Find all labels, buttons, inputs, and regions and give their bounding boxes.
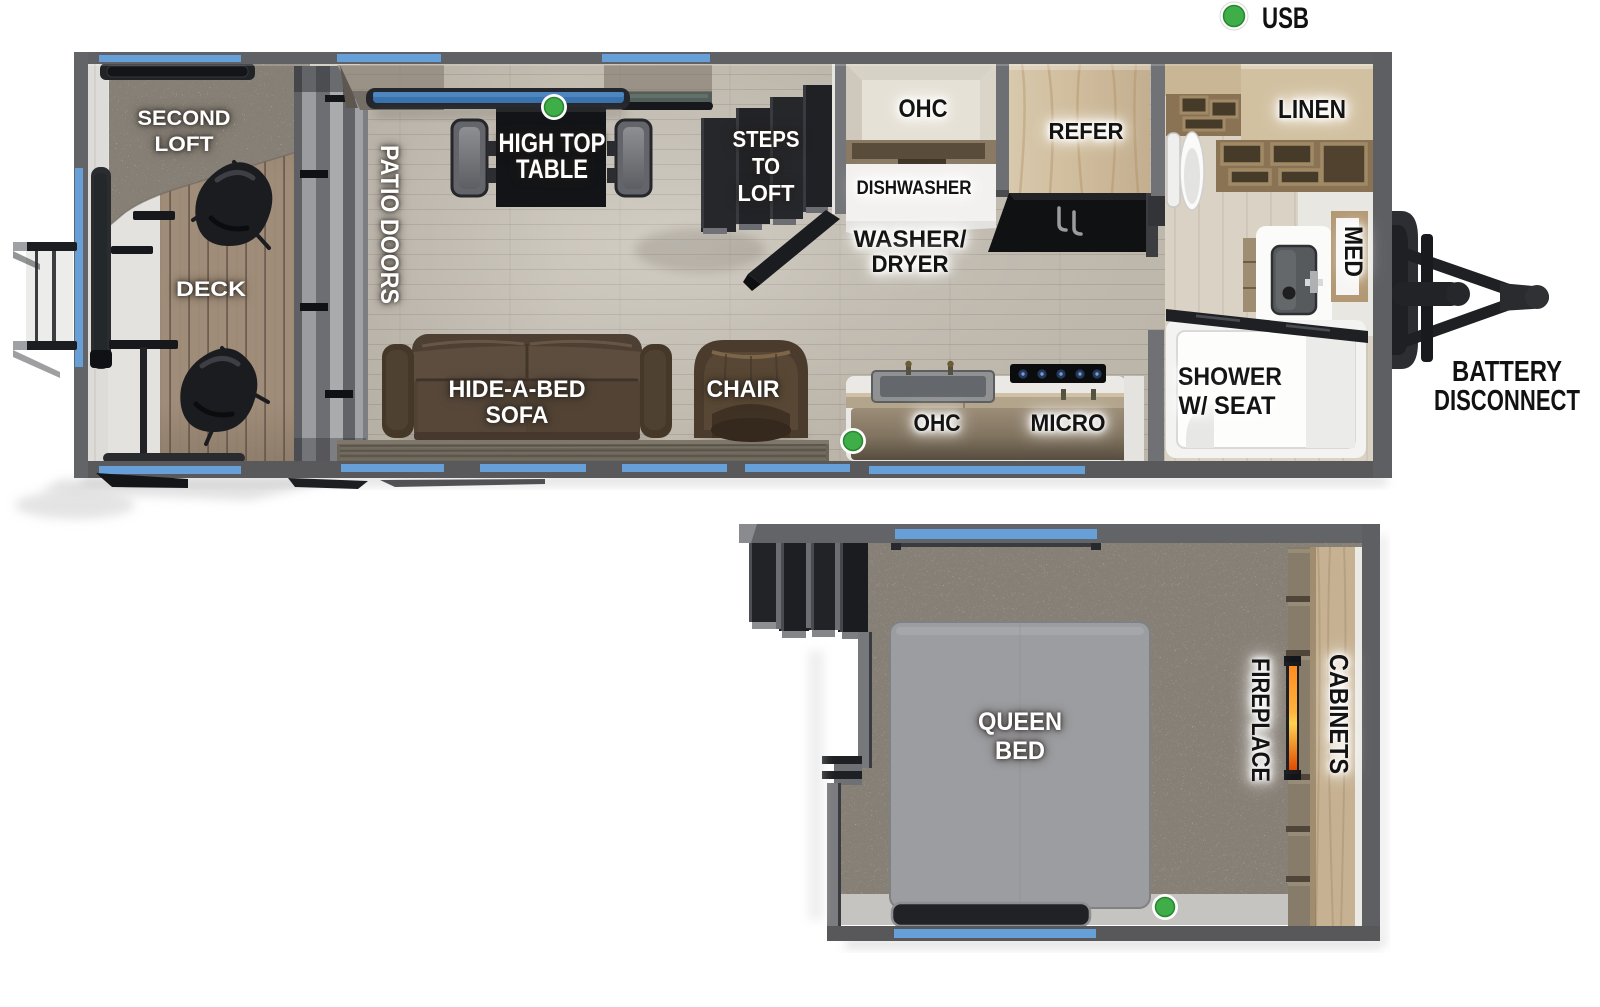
svg-text:CHAIR: CHAIR (707, 376, 780, 403)
svg-text:BATTERY: BATTERY (1452, 356, 1562, 388)
svg-text:PATIO DOORS: PATIO DOORS (375, 145, 403, 304)
svg-text:LOFT: LOFT (155, 133, 214, 156)
svg-text:QUEEN: QUEEN (978, 708, 1062, 736)
svg-text:TABLE: TABLE (516, 154, 588, 184)
svg-text:MED: MED (1339, 226, 1367, 277)
svg-text:LOFT: LOFT (738, 180, 795, 206)
svg-text:LINEN: LINEN (1278, 94, 1346, 124)
svg-text:OHC: OHC (914, 410, 961, 437)
svg-text:DRYER: DRYER (872, 251, 949, 278)
svg-text:STEPS: STEPS (733, 126, 800, 152)
svg-text:DISCONNECT: DISCONNECT (1434, 385, 1580, 417)
svg-text:SECOND: SECOND (138, 107, 231, 130)
svg-text:CABINETS: CABINETS (1324, 654, 1354, 774)
svg-text:DISHWASHER: DISHWASHER (857, 178, 972, 199)
svg-text:SHOWER: SHOWER (1178, 363, 1282, 391)
svg-text:DECK: DECK (176, 278, 246, 301)
svg-text:BED: BED (995, 737, 1045, 765)
svg-text:USB: USB (1262, 2, 1309, 35)
svg-text:SOFA: SOFA (486, 402, 549, 429)
svg-text:REFER: REFER (1049, 118, 1124, 144)
svg-text:WASHER/: WASHER/ (854, 226, 967, 253)
svg-text:TO: TO (752, 153, 780, 179)
svg-text:OHC: OHC (899, 95, 948, 123)
svg-text:MICRO: MICRO (1031, 410, 1106, 437)
svg-text:FIREPLACE: FIREPLACE (1246, 658, 1274, 782)
svg-text:HIDE-A-BED: HIDE-A-BED (449, 376, 586, 403)
svg-text:W/ SEAT: W/ SEAT (1179, 392, 1276, 420)
